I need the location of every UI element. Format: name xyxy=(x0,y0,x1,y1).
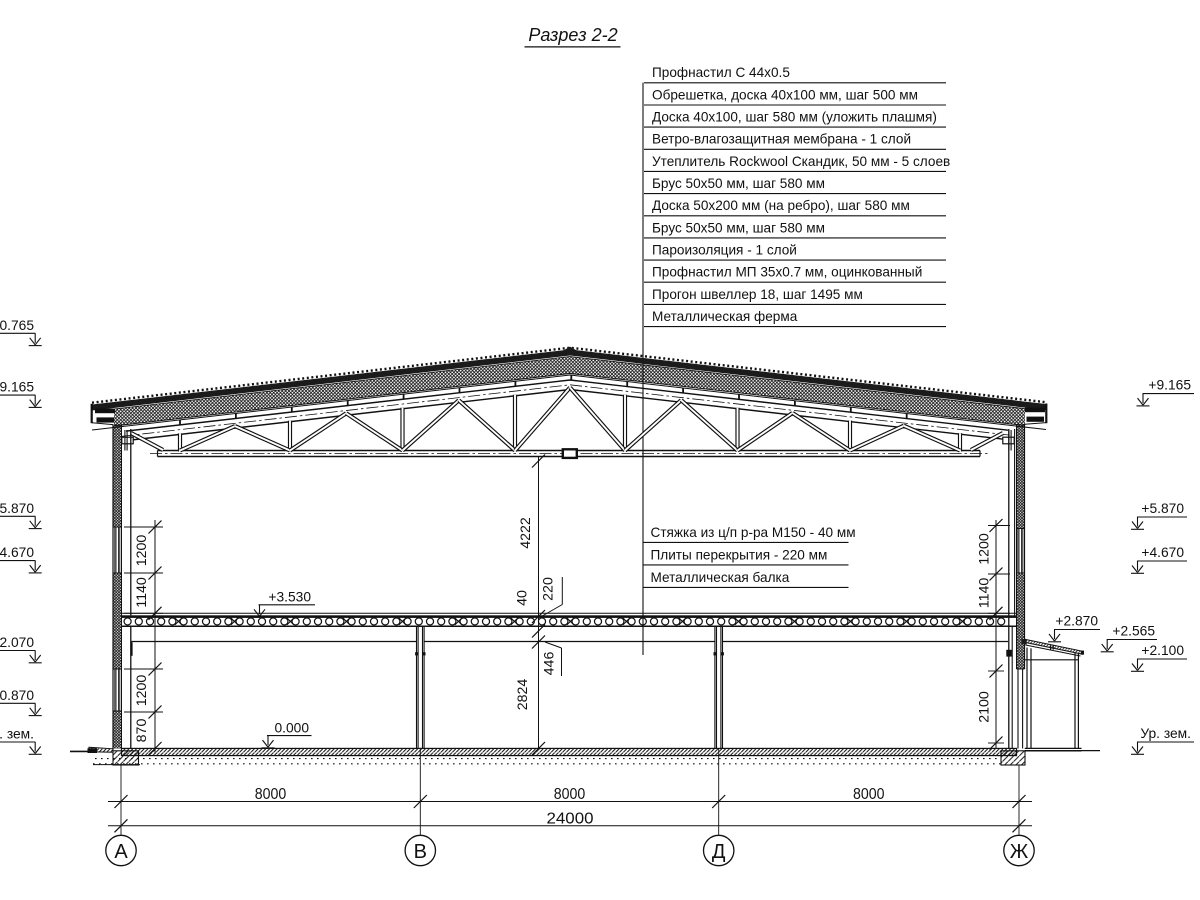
svg-text:Д: Д xyxy=(712,841,726,863)
svg-text:Плиты перекрытия - 220 мм: Плиты перекрытия - 220 мм xyxy=(651,547,828,562)
svg-text:В: В xyxy=(414,841,427,863)
svg-text:Утеплитель Rockwool Скандик, 5: Утеплитель Rockwool Скандик, 50 мм - 5 с… xyxy=(652,154,950,169)
svg-text:+3.530: +3.530 xyxy=(268,590,311,605)
svg-text:Ветро-влагозащитная мембрана -: Ветро-влагозащитная мембрана - 1 слой xyxy=(652,132,911,147)
svg-text:+4.670: +4.670 xyxy=(0,545,34,560)
svg-text:+2.070: +2.070 xyxy=(0,635,34,650)
svg-text:Ур. зем.: Ур. зем. xyxy=(1140,726,1191,741)
svg-text:24000: 24000 xyxy=(547,811,594,828)
svg-text:+5.870: +5.870 xyxy=(0,501,34,516)
svg-text:+9.165: +9.165 xyxy=(1148,378,1191,393)
svg-text:Ур. зем.: Ур. зем. xyxy=(0,727,34,742)
svg-text:Профнастил С 44х0.5: Профнастил С 44х0.5 xyxy=(652,65,790,80)
svg-text:Брус 50х50 мм, шаг 580 мм: Брус 50х50 мм, шаг 580 мм xyxy=(652,220,825,235)
svg-text:8000: 8000 xyxy=(554,786,586,803)
svg-text:Брус 50х50 мм, шаг 580 мм: Брус 50х50 мм, шаг 580 мм xyxy=(652,176,825,191)
svg-text:Профнастил МП 35х0.7 мм, оцинк: Профнастил МП 35х0.7 мм, оцинкованный xyxy=(652,265,922,280)
svg-text:1140: 1140 xyxy=(134,577,150,608)
svg-text:+5.870: +5.870 xyxy=(1141,501,1184,516)
svg-text:+9.165: +9.165 xyxy=(0,380,34,395)
svg-text:0.000: 0.000 xyxy=(274,720,309,735)
svg-text:4222: 4222 xyxy=(518,517,534,549)
svg-text:А: А xyxy=(114,841,128,863)
svg-text:Разрез 2-2: Разрез 2-2 xyxy=(528,25,617,45)
svg-text:Обрешетка, доска 40х100 мм, ша: Обрешетка, доска 40х100 мм, шаг 500 мм xyxy=(652,87,918,102)
svg-text:870: 870 xyxy=(134,719,150,743)
svg-text:+2.100: +2.100 xyxy=(1141,643,1184,658)
svg-text:8000: 8000 xyxy=(853,786,885,803)
svg-text:Ж: Ж xyxy=(1010,841,1029,863)
svg-text:Доска 50х200 мм (на ребро), ша: Доска 50х200 мм (на ребро), шаг 580 мм xyxy=(652,198,910,213)
svg-text:1200: 1200 xyxy=(134,675,150,707)
svg-text:Металлическая ферма: Металлическая ферма xyxy=(652,309,798,324)
svg-text:Металлическая балка: Металлическая балка xyxy=(651,570,790,585)
svg-text:+4.670: +4.670 xyxy=(1141,545,1184,560)
svg-text:40: 40 xyxy=(515,590,531,606)
svg-text:1200: 1200 xyxy=(134,535,150,567)
svg-text:1140: 1140 xyxy=(977,578,993,609)
svg-text:2824: 2824 xyxy=(515,679,531,711)
svg-text:Пароизоляция - 1 слой: Пароизоляция - 1 слой xyxy=(652,243,797,258)
svg-text:220: 220 xyxy=(541,577,557,601)
svg-text:+2.870: +2.870 xyxy=(1055,614,1098,629)
svg-text:Прогон швеллер 18, шаг 1495 мм: Прогон швеллер 18, шаг 1495 мм xyxy=(652,287,863,302)
svg-text:2100: 2100 xyxy=(977,691,993,723)
svg-text:1200: 1200 xyxy=(977,533,993,565)
svg-text:+2.565: +2.565 xyxy=(1112,624,1155,639)
svg-text:Стяжка из ц/п р-ра М150 - 40 м: Стяжка из ц/п р-ра М150 - 40 мм xyxy=(651,525,856,540)
svg-text:Доска 40х100, шаг 580 мм (улож: Доска 40х100, шаг 580 мм (уложить плашмя… xyxy=(652,110,937,125)
svg-text:446: 446 xyxy=(542,652,558,676)
svg-text:8000: 8000 xyxy=(255,786,287,803)
svg-text:+0.870: +0.870 xyxy=(0,688,34,703)
svg-text:+10.765: +10.765 xyxy=(0,318,34,333)
